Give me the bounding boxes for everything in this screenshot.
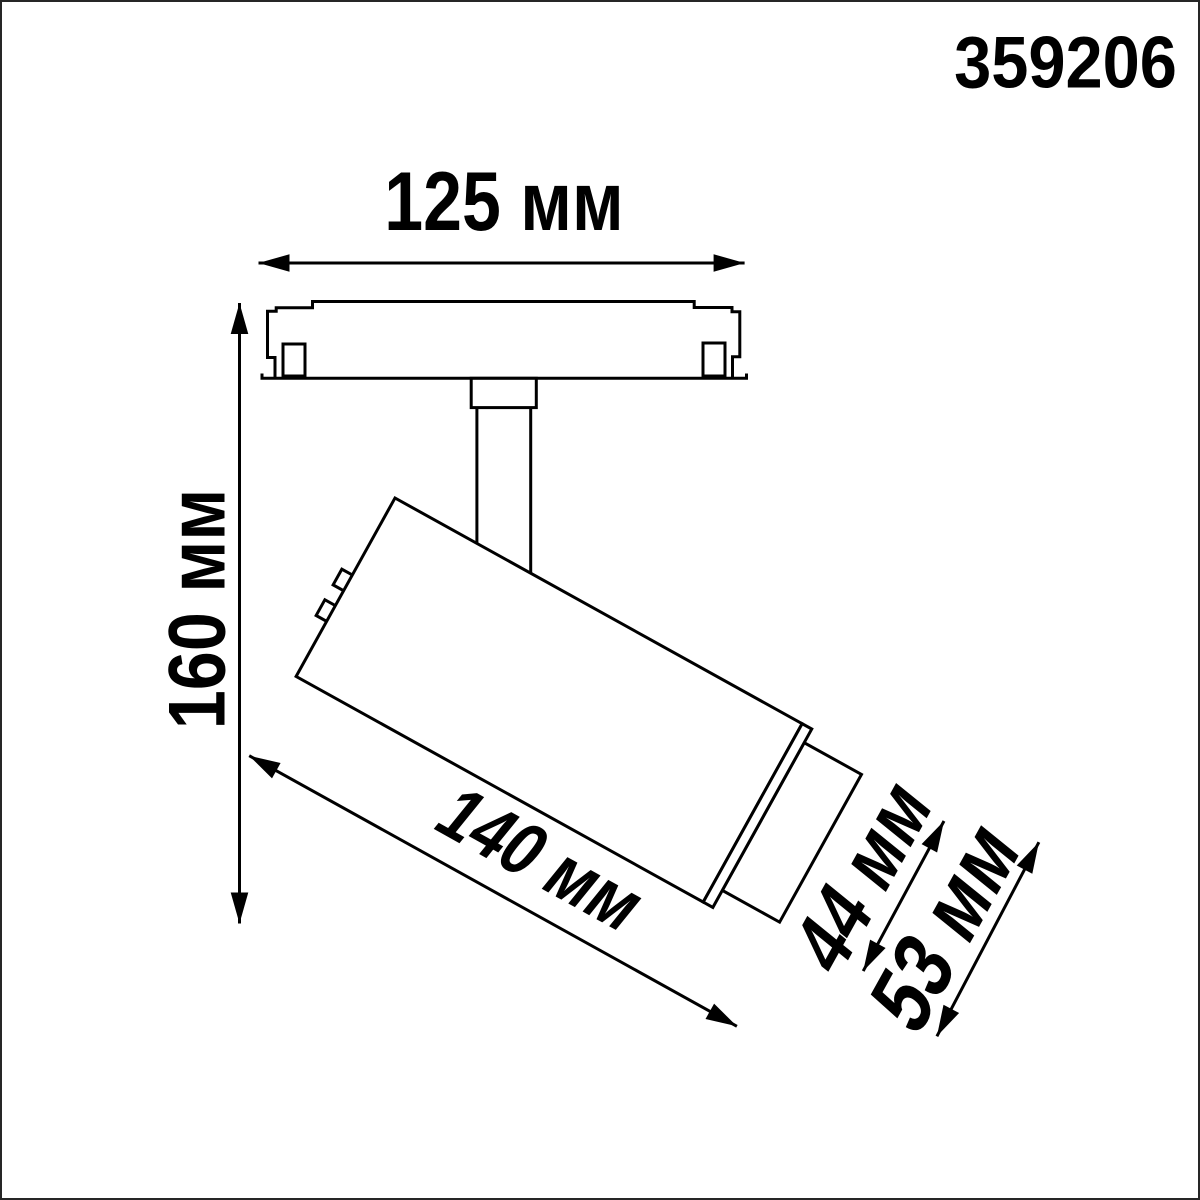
svg-text:125 мм: 125 мм (384, 155, 623, 248)
svg-text:359206: 359206 (954, 22, 1177, 103)
svg-text:160 мм: 160 мм (152, 489, 243, 730)
